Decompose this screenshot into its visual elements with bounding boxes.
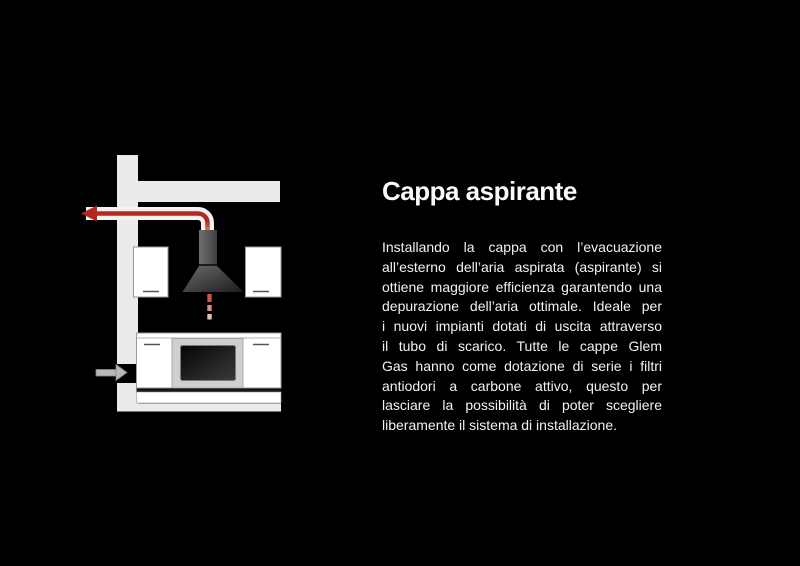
floor: [117, 404, 281, 412]
body-line: Gas hanno come dotazione di serie i filt…: [382, 357, 662, 377]
body-line: ottiene maggiore efficienza garantendo u…: [382, 278, 662, 298]
air-inlet-arrow-shaft: [96, 370, 116, 377]
page-title: Cappa aspirante: [382, 176, 662, 206]
body-line: depurazione dell’aria ottimale. Ideale p…: [382, 297, 662, 317]
ceiling-soffit: [138, 181, 280, 202]
rising-air-dash-1: [207, 294, 211, 302]
page: Cappa aspirante Installando la cappa con…: [0, 0, 800, 566]
body-text: Installando la cappa con l’evacuazione a…: [382, 238, 662, 436]
wall-cabinet-left: [134, 247, 169, 297]
article: Cappa aspirante Installando la cappa con…: [382, 176, 662, 436]
oven-door-glass: [181, 346, 236, 381]
body-line: antiodori a carbone attivo, questo per: [382, 377, 662, 397]
cabinet-shadow: [137, 388, 282, 392]
body-line: Installando la cappa con l’evacuazione: [382, 238, 662, 258]
wall-cabinet-right: [246, 247, 282, 297]
rising-air-dash-2: [207, 305, 211, 311]
body-line: all’esterno dell’aria aspirata (aspirant…: [382, 258, 662, 278]
hood-canopy: [183, 266, 244, 292]
hood-fold-line: [199, 264, 217, 266]
body-line: liberamente il sistema di installazione.: [382, 416, 662, 436]
body-line: lasciare la possibilità di poter sceglie…: [382, 396, 662, 416]
body-line: il tubo di scarico. Tutte le cappe Glem: [382, 337, 662, 357]
hood-chimney: [199, 230, 217, 266]
kitchen-hood-diagram: [60, 140, 300, 430]
rising-air-dash-3: [207, 314, 211, 320]
exhaust-duct-tube: [86, 214, 208, 238]
body-line: i nuovi impianti dotati di uscita attrav…: [382, 317, 662, 337]
plinth: [137, 392, 282, 403]
